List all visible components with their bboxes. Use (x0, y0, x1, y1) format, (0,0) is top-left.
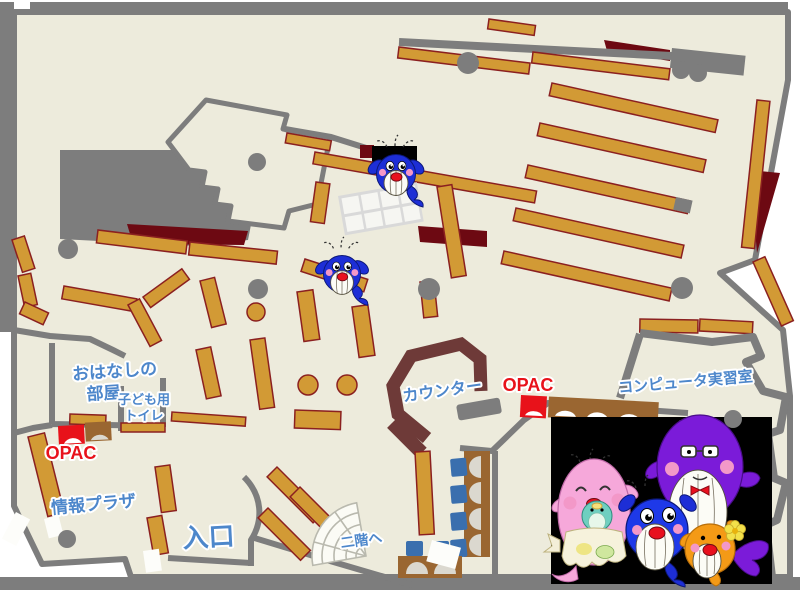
label-kids-toilet: 子ども用 (118, 392, 170, 407)
chair (450, 512, 468, 531)
label-entrance: 入口 (182, 521, 236, 554)
label-opac-left: OPAC (46, 443, 97, 463)
chair (450, 485, 468, 504)
floor-map-canvas: おはなしの 部屋 子ども用 トイレ OPAC OPAC 情報プラザ 入口 カウン… (0, 0, 800, 590)
bookshelf (121, 423, 165, 432)
label-kids-toilet-2: トイレ (124, 408, 163, 423)
doorway (143, 549, 162, 573)
label-storytelling-room-2: 部屋 (86, 382, 121, 404)
chair (406, 541, 423, 556)
library-floor-map: おはなしの 部屋 子ども用 トイレ OPAC OPAC 情報プラザ 入口 カウン… (0, 0, 800, 590)
whale-family-illustration-icon (544, 410, 772, 587)
label-opac-right: OPAC (503, 375, 554, 395)
table (294, 410, 341, 430)
bookshelf (699, 319, 753, 334)
chair (450, 458, 468, 477)
